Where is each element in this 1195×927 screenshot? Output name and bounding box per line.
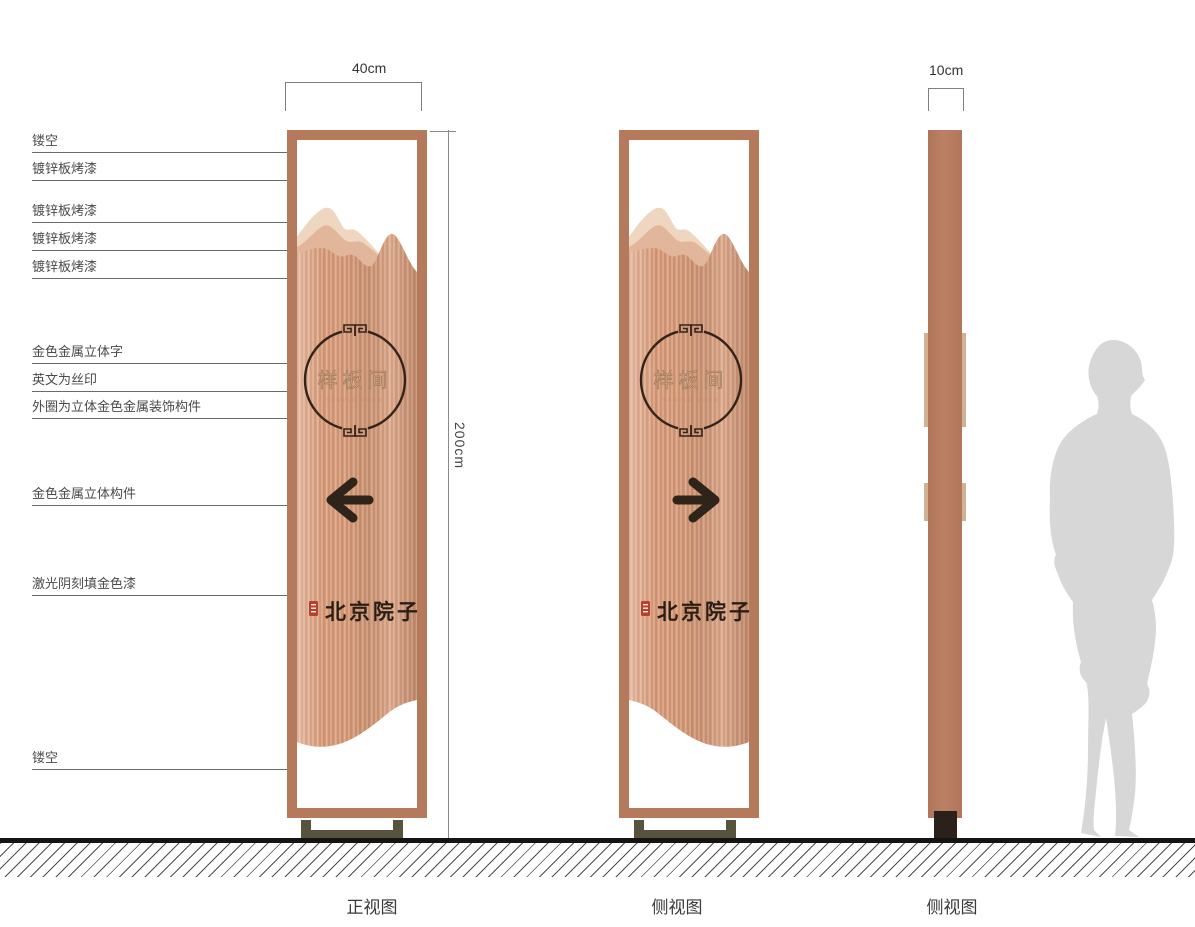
callout-label: 外圈为立体金色金属装饰构件 bbox=[32, 399, 317, 415]
dimension-depth-bracket bbox=[928, 88, 964, 111]
callout-label: 镀锌板烤漆 bbox=[32, 161, 287, 177]
side-panel-base bbox=[634, 820, 736, 838]
callout-leader-line bbox=[32, 152, 306, 153]
caption-side-view-1: 侧视图 bbox=[652, 893, 703, 918]
callout-leader-line bbox=[32, 278, 291, 279]
callout-leader-line bbox=[32, 180, 287, 181]
dimension-depth-label: 10cm bbox=[929, 62, 963, 78]
callout-galvanized-4: 镀锌板烤漆 bbox=[32, 259, 291, 279]
dimension-height-label: 200cm bbox=[452, 422, 468, 469]
callout-galvanized-3: 镀锌板烤漆 bbox=[32, 231, 295, 251]
caption-front-view: 正视图 bbox=[347, 893, 398, 918]
arrow-component-protrusion-right bbox=[962, 483, 966, 521]
logo-text: 北京院子 bbox=[325, 599, 421, 624]
panel-copper-shade bbox=[629, 234, 749, 747]
callout-leader-line bbox=[32, 363, 322, 364]
callout-leader-line bbox=[32, 769, 304, 770]
circle-subtext: SAMPLE ROOM bbox=[326, 398, 383, 404]
callout-gold-3d-letters: 金色金属立体字 bbox=[32, 344, 322, 364]
callout-hollow-bottom: 镂空 bbox=[32, 750, 304, 770]
callout-label: 镂空 bbox=[32, 750, 304, 766]
profile-view-panel bbox=[928, 130, 962, 818]
panel-copper-shade bbox=[297, 234, 417, 747]
ground-hatch bbox=[0, 843, 1195, 877]
front-panel-base bbox=[301, 820, 403, 838]
base-foot bbox=[726, 820, 736, 838]
callout-outer-ring: 外圈为立体金色金属装饰构件 bbox=[32, 399, 317, 419]
dimension-width-bracket bbox=[285, 82, 422, 111]
circle-text: 样板间 bbox=[654, 369, 729, 392]
circle-subtext: SAMPLE ROOM bbox=[662, 398, 719, 404]
callout-leader-line bbox=[32, 391, 327, 392]
side-view-panel: 样板间 SAMPLE ROOM 北京院子 bbox=[619, 130, 759, 818]
circle-component-protrusion-right bbox=[962, 333, 966, 427]
dimension-width-label: 40cm bbox=[352, 60, 386, 76]
circle-text: 样板间 bbox=[318, 369, 393, 392]
callout-label: 镀锌板烤漆 bbox=[32, 231, 295, 247]
dimension-height-tick bbox=[430, 131, 456, 132]
callout-galvanized-1: 镀锌板烤漆 bbox=[32, 161, 287, 181]
callout-leader-line bbox=[32, 222, 301, 223]
callout-label: 金色金属立体字 bbox=[32, 344, 322, 360]
arrow-component-protrusion-left bbox=[924, 483, 928, 521]
callout-label: 镀锌板烤漆 bbox=[32, 203, 301, 219]
front-view-panel: 样板间 SAMPLE ROOM 北京院子 bbox=[287, 130, 427, 818]
callout-galvanized-2: 镀锌板烤漆 bbox=[32, 203, 301, 223]
callout-english-silkscreen: 英文为丝印 bbox=[32, 372, 327, 392]
base-bar bbox=[643, 830, 727, 838]
callout-hollow-top: 镂空 bbox=[32, 133, 306, 153]
person-silhouette-shape bbox=[1050, 340, 1175, 837]
design-sheet: 镂空 镀锌板烤漆 镀锌板烤漆 镀锌板烤漆 镀锌板烤漆 金色金属立体字 英文为丝印… bbox=[0, 0, 1195, 927]
base-bar bbox=[310, 830, 394, 838]
logo-text: 北京院子 bbox=[657, 599, 753, 624]
base-foot bbox=[393, 820, 403, 838]
dimension-height-line bbox=[448, 130, 449, 838]
profile-panel-base bbox=[934, 811, 957, 838]
callout-label: 镂空 bbox=[32, 133, 306, 149]
callout-leader-line bbox=[32, 418, 317, 419]
human-scale-silhouette bbox=[1037, 340, 1177, 840]
circle-component-protrusion-left bbox=[924, 333, 928, 427]
callout-label: 镀锌板烤漆 bbox=[32, 259, 291, 275]
callout-leader-line bbox=[32, 250, 295, 251]
brand-logo: 北京院子 bbox=[309, 599, 421, 624]
brand-logo: 北京院子 bbox=[641, 599, 753, 624]
caption-side-view-2: 侧视图 bbox=[927, 893, 978, 918]
callout-label: 英文为丝印 bbox=[32, 372, 327, 388]
